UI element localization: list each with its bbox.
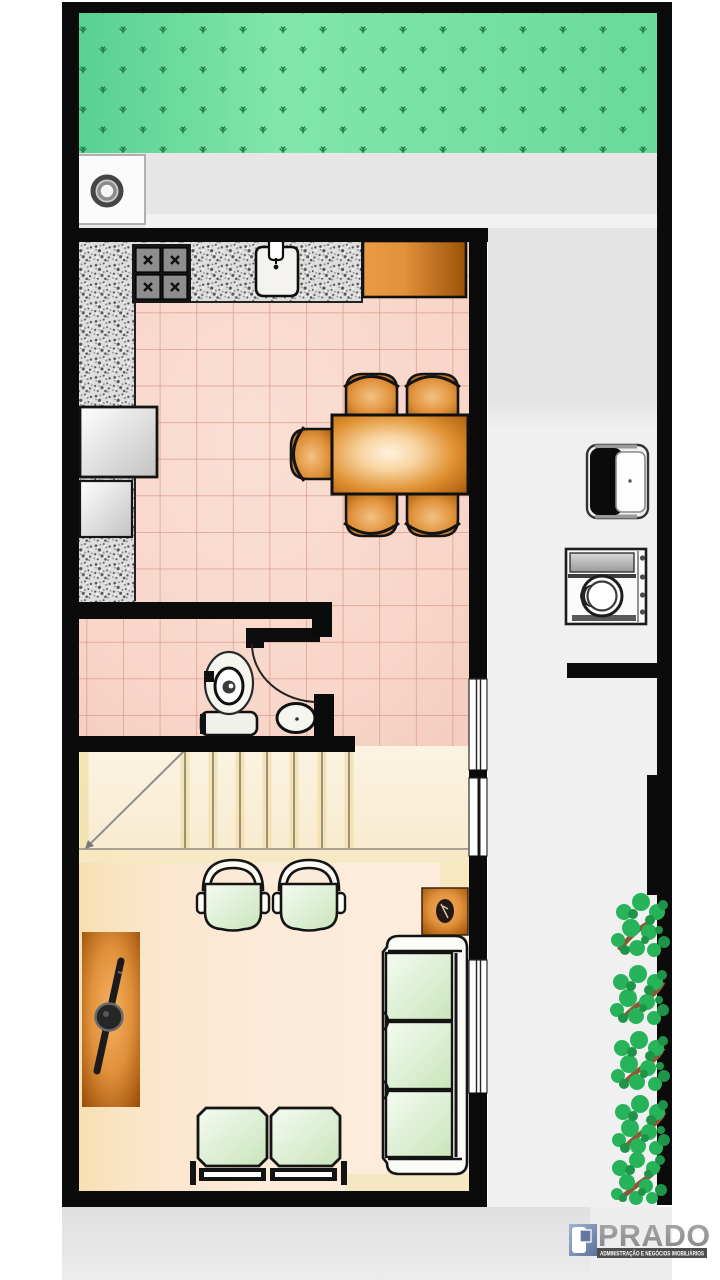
svg-text:PRADO: PRADO <box>598 1219 711 1253</box>
svg-text:ADMINISTRAÇÃO E NEGÓCIOS IMOBI: ADMINISTRAÇÃO E NEGÓCIOS IMOBILIÁRIOS <box>600 1250 704 1258</box>
